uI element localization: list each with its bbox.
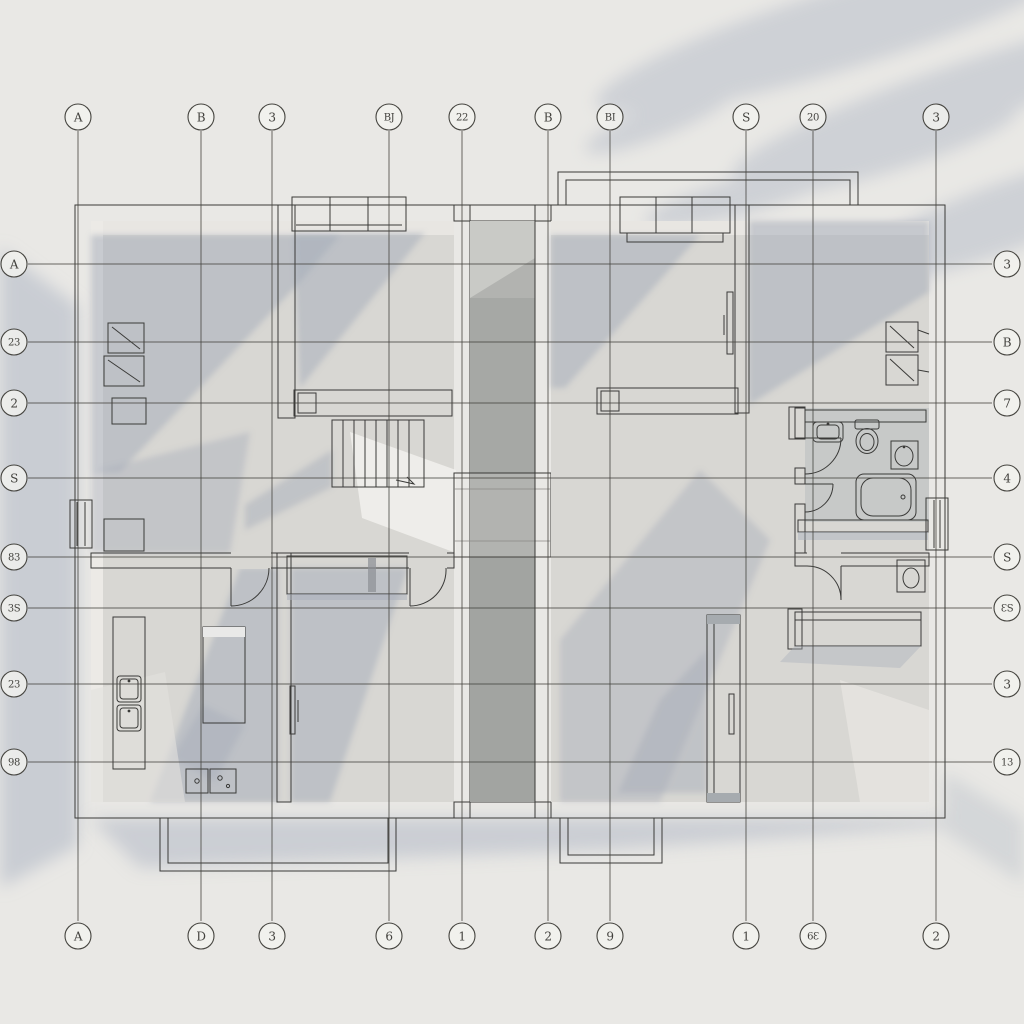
grid-bubble-label: 1 — [458, 929, 465, 943]
door-opening — [807, 552, 841, 567]
grid-bubble-label: 98 — [8, 758, 20, 769]
grid-bubble-label: 3 — [932, 110, 939, 124]
grid-bubble-label: 13 — [1001, 758, 1013, 769]
grid-bubble-label: A — [73, 929, 83, 943]
grid-bubble-label: BJ — [384, 113, 395, 124]
corridor-shade — [470, 298, 535, 473]
grid-bubble-label: S — [10, 471, 18, 485]
wall-shadow — [798, 532, 928, 540]
grid-bubble-label: 3 — [268, 110, 275, 124]
grid-bubble-label: 23 — [8, 338, 20, 349]
grid-bubble-label: 83 — [8, 553, 20, 564]
right-unit — [535, 172, 948, 863]
grid-bubble-label: 2 — [10, 396, 17, 410]
door-opening — [231, 552, 271, 569]
grid-bubble-label: 6Ɛ — [807, 932, 819, 943]
grid-bubble-label: 2 — [932, 929, 939, 943]
grid-bubble-label: 3 — [1003, 677, 1010, 691]
corridor-shade — [470, 557, 535, 802]
grid-bubble-label: BI — [605, 113, 616, 124]
grid-bubble-label: S — [742, 110, 750, 124]
door-opening — [409, 552, 447, 569]
floor-plan-drawing: AABD33BJ6221B2BI9S1206Ɛ32A323B27S483S3SƐ… — [0, 0, 1024, 1024]
grid-bubble-label: B — [197, 110, 206, 124]
grid-bubble-label: 6 — [385, 929, 392, 943]
grid-bubble-label: 20 — [807, 113, 819, 124]
grid-bubble-label: 23 — [8, 680, 20, 691]
grid-bubble-label: 9 — [606, 929, 613, 943]
grid-bubble-label: A — [9, 257, 19, 271]
grid-bubble-label: 3S — [8, 604, 21, 615]
grid-bubble-label: 2 — [544, 929, 551, 943]
grid-bubble-label: D — [196, 929, 205, 943]
grid-bubble-label: B — [1003, 335, 1012, 349]
grid-bubble-label: S — [1003, 550, 1011, 564]
grid-bubble-label: 22 — [456, 113, 468, 124]
grid-bubble-label: 7 — [1003, 396, 1010, 410]
grid-bubble-label: ƐS — [1001, 604, 1014, 615]
grid-bubble-label: 3 — [268, 929, 275, 943]
blueprint-canvas: AABD33BJ6221B2BI9S1206Ɛ32A323B27S483S3SƐ… — [0, 0, 1024, 1024]
grid-bubble-label: B — [544, 110, 553, 124]
grid-bubble-label: 3 — [1003, 257, 1010, 271]
left-unit — [70, 197, 470, 871]
grid-bubble-label: 1 — [742, 929, 749, 943]
grid-bubble-label: 4 — [1003, 471, 1011, 485]
grid-bubble-label: A — [73, 110, 83, 124]
